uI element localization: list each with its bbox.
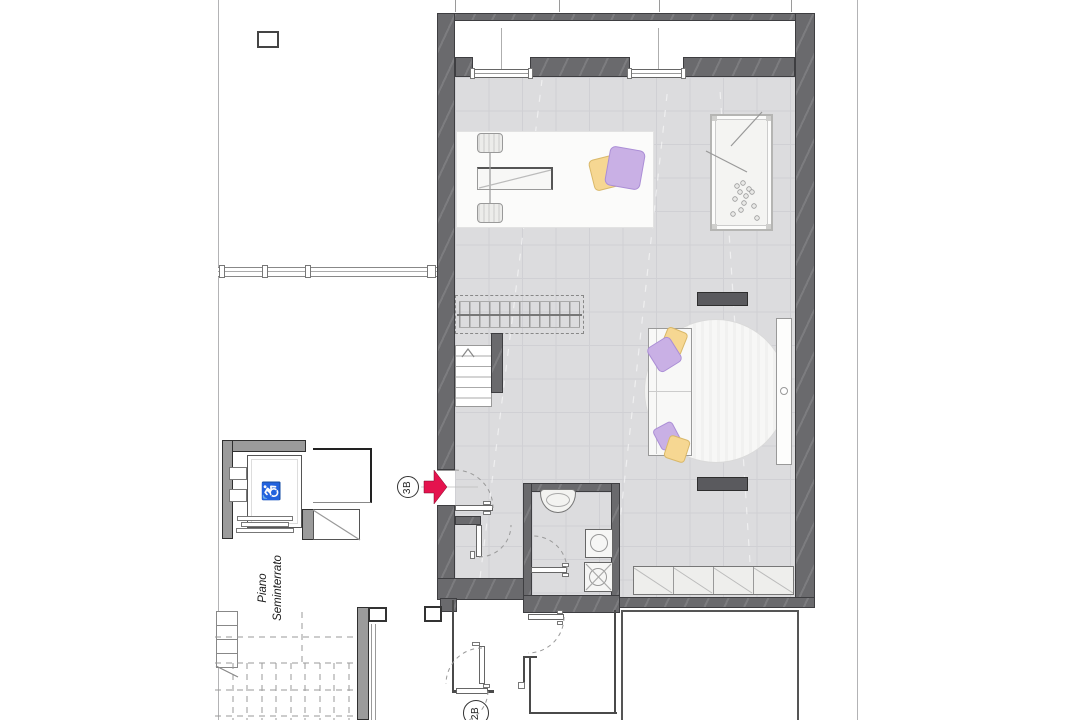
window-mullion bbox=[305, 265, 311, 278]
door-leaf-2b-top bbox=[528, 614, 564, 620]
window-midline bbox=[474, 73, 529, 74]
wall-left-stub bbox=[440, 598, 457, 612]
elevator-sill bbox=[237, 516, 293, 521]
wall-bottom bbox=[611, 597, 815, 608]
desk bbox=[477, 167, 553, 190]
top-tick bbox=[791, 0, 792, 12]
elevator-wall-top bbox=[222, 440, 306, 452]
wall-left-upper bbox=[437, 13, 455, 470]
wall-notch bbox=[368, 607, 387, 622]
washing-machine-drum bbox=[590, 534, 608, 552]
cushion-purple bbox=[604, 145, 646, 191]
window-mullion bbox=[427, 265, 436, 278]
bath-wall-bottom bbox=[523, 595, 620, 613]
wall-2b bbox=[529, 712, 617, 714]
top-tick bbox=[455, 0, 456, 12]
pillar bbox=[257, 31, 279, 48]
unit-marker-2b: 2B bbox=[463, 700, 489, 720]
mini-stairs bbox=[216, 611, 238, 668]
threshold-line bbox=[437, 470, 455, 471]
radiator bbox=[697, 477, 748, 491]
door-leaf-2b-bottom bbox=[456, 688, 488, 694]
bed-headboard-line bbox=[649, 391, 691, 392]
top-tick bbox=[559, 0, 560, 12]
wall-left-lower bbox=[437, 505, 455, 582]
floor-label-line2: Seminterrato bbox=[271, 540, 286, 636]
shaft-room bbox=[313, 448, 372, 503]
wall-top bbox=[437, 13, 815, 21]
stairs bbox=[455, 345, 492, 407]
storage-box bbox=[313, 509, 360, 540]
party-wall bbox=[357, 607, 369, 720]
elevator-machinery bbox=[229, 467, 247, 480]
wall-2b bbox=[529, 658, 531, 714]
adjacent-room bbox=[621, 610, 799, 720]
chair bbox=[477, 203, 503, 223]
window-midline bbox=[631, 73, 682, 74]
door-handle bbox=[562, 563, 569, 567]
wall-line bbox=[375, 624, 376, 720]
pillar bbox=[424, 606, 442, 622]
wall-tick bbox=[518, 682, 525, 689]
chair bbox=[477, 133, 503, 153]
door-handle bbox=[483, 501, 491, 505]
door-handle bbox=[557, 610, 563, 614]
entrance-arrow-icon bbox=[424, 470, 447, 504]
door-leaf-2b-mid bbox=[479, 646, 485, 684]
radiator bbox=[697, 292, 748, 306]
window-band-left bbox=[218, 267, 437, 277]
closet-divider bbox=[753, 567, 754, 594]
vestibule-door-leaf bbox=[476, 525, 482, 557]
elevator-machinery bbox=[229, 489, 247, 502]
door-handle bbox=[470, 551, 475, 559]
bath-wall-left bbox=[523, 483, 532, 613]
door-handle bbox=[562, 573, 569, 577]
window-mullion bbox=[262, 265, 268, 278]
door-handle bbox=[557, 621, 563, 625]
window-mullion bbox=[219, 265, 225, 278]
door-handle bbox=[472, 642, 480, 646]
stair-wall bbox=[491, 333, 503, 393]
wall-2b bbox=[452, 600, 454, 692]
elevator-sill bbox=[241, 522, 289, 527]
pool-pocket bbox=[712, 116, 717, 121]
vestibule-wall bbox=[455, 516, 481, 525]
pool-pocket bbox=[766, 224, 771, 229]
closet-divider bbox=[673, 567, 674, 594]
unit-marker-3b: 3B bbox=[397, 476, 419, 498]
sink-basin bbox=[546, 493, 570, 507]
floor-plan: ♿ Piano Seminterrato 3B 2B bbox=[0, 0, 1080, 720]
closet-divider bbox=[713, 567, 714, 594]
wardrobe-rail-bar bbox=[457, 314, 582, 316]
pool-pocket bbox=[712, 224, 717, 229]
door-handle bbox=[483, 684, 490, 688]
boundary-line-right bbox=[857, 0, 858, 720]
floor-label-line1: Piano bbox=[256, 540, 271, 636]
wall-window-seg bbox=[683, 57, 795, 77]
window-post bbox=[681, 68, 686, 79]
window-post bbox=[627, 68, 632, 79]
window-post bbox=[470, 68, 475, 79]
wall-2b bbox=[614, 610, 616, 714]
pool-table-inner bbox=[715, 119, 768, 226]
wheelchair-icon: ♿ bbox=[261, 480, 283, 502]
dryer-drum bbox=[589, 568, 607, 586]
wall-bottom-left bbox=[437, 578, 525, 600]
wall-window-seg bbox=[530, 57, 630, 77]
floor-label: Piano Seminterrato bbox=[256, 540, 286, 636]
top-tick bbox=[659, 0, 660, 12]
panel-knob bbox=[780, 387, 788, 395]
pool-pocket bbox=[766, 116, 771, 121]
window-post bbox=[528, 68, 533, 79]
wall-right bbox=[795, 13, 815, 608]
door-handle bbox=[483, 511, 491, 515]
window-band-midline bbox=[218, 271, 437, 272]
elevator-sill bbox=[236, 528, 294, 533]
wall-line bbox=[371, 624, 372, 720]
